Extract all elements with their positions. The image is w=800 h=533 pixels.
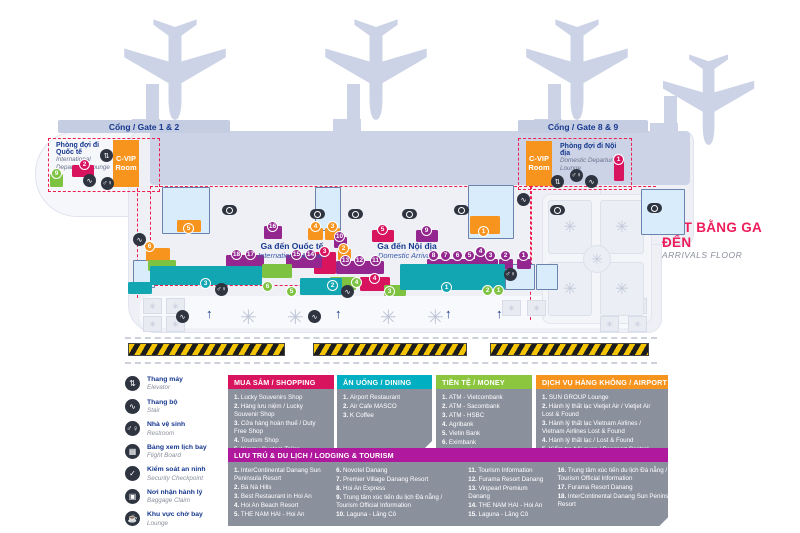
elevator-icon: ⇅: [100, 149, 113, 162]
legend-label-en: Restroom: [147, 430, 185, 438]
flight-board-icon: [310, 209, 325, 219]
legend-item: ▣Nơi nhận hành lýBaggage Claim: [125, 489, 225, 505]
panel-item: 3. Cửa hàng hoàn thuế / Duty Free Shop: [234, 420, 328, 436]
map-room: [641, 189, 685, 235]
legend-item: ☕Khu vực chờ bayLounge: [125, 511, 225, 527]
map-badge-purple: 8: [428, 250, 439, 261]
road-dash-bottom: [125, 362, 657, 364]
road-dash-top: [125, 337, 657, 339]
map-badge-teal: 3: [200, 278, 211, 289]
map-badge-orange: 3: [327, 221, 338, 232]
panel-item-number: 3.: [343, 412, 350, 419]
arrivals-floor-map: ✳ Cổng / Gate 1 & 2 Cổng / Gate 8 & 9 Ph…: [0, 0, 800, 533]
panel-item-number: 4.: [234, 437, 241, 444]
panel-item: 8. Hoi An Express: [336, 485, 460, 493]
panel-item: 6. Novotel Danang: [336, 467, 460, 475]
panel-item-number: 4.: [542, 437, 549, 444]
flight-board-icon: ▦: [125, 444, 140, 459]
panel-item-number: 1.: [234, 394, 241, 401]
up-arrow-icon: ↑: [335, 306, 342, 321]
panel-shopping-header: MUA SẮM / SHOPPING: [228, 375, 334, 389]
map-badge-green: 9: [51, 168, 62, 179]
legend-labels: Thang máyElevator: [147, 376, 183, 392]
legend-labels: Nhà vệ sinhRestroom: [147, 421, 185, 437]
planter-icon: ✳: [628, 316, 647, 332]
panel-dining-header: ĂN UỐNG / DINING: [337, 375, 432, 389]
panel-item-number: 9.: [336, 494, 343, 501]
cvip-room-left: C-VIP Room: [113, 140, 139, 187]
panel-dining: ĂN UỐNG / DINING 1. Airport Restaurant2.…: [337, 375, 432, 450]
legend-item: ✓Kiểm soát an ninhSecurity Checkpoint: [125, 466, 225, 482]
legend-label-vi: Khu vực chờ bay: [147, 511, 203, 519]
panel-service-header: DỊCH VỤ HÀNG KHÔNG / AIRPORT SERVICE: [536, 375, 668, 389]
planter-flower-icon: ✳: [380, 308, 397, 328]
panel-item-number: 5.: [234, 511, 241, 518]
panel-item: 5. THE NAM HAI - Hoi An: [234, 511, 328, 519]
panel-lodging-header: LƯU TRÚ & DU LỊCH / LODGING & TOURISM: [228, 448, 668, 462]
map-badge-purple: 10: [334, 231, 345, 242]
map-badge-purple: 13: [340, 255, 351, 266]
map-badge-crimson: 1: [613, 154, 624, 165]
map-badge-crimson: 2: [79, 159, 90, 170]
panel-item-number: 6.: [336, 467, 343, 474]
panel-item-number: 8.: [336, 485, 343, 492]
panel-item: 17. Furama Resort Danang: [558, 484, 686, 492]
map-badge-purple: 3: [485, 250, 496, 261]
panel-item: 14. THE NAM HAI - Hoi An: [468, 502, 549, 510]
baggage-icon: ▣: [125, 489, 140, 504]
planter-icon: ✳: [527, 300, 546, 316]
map-badge-purple: 6: [452, 250, 463, 261]
panel-item: 15. Laguna - Lăng Cô: [468, 511, 549, 519]
gate-bar-right: Cổng / Gate 8 & 9: [518, 120, 648, 133]
lodging-column: 6. Novotel Danang7. Premier Village Dana…: [336, 467, 460, 520]
panel-item: 12. Furama Resort Danang: [468, 476, 549, 484]
map-badge-teal: 2: [327, 280, 338, 291]
panel-item: 1. SUN GROUP Lounge: [542, 394, 662, 402]
legend-label-vi: Thang máy: [147, 376, 183, 384]
panel-item-number: 3.: [442, 412, 449, 419]
map-room: [536, 264, 558, 290]
legend-item: ▦Bảng xem lịch bayFlight Board: [125, 444, 225, 460]
legend-item: ♂♀Nhà vệ sinhRestroom: [125, 421, 225, 437]
panel-item-number: 2.: [442, 403, 449, 410]
planter-icon: ✳: [143, 316, 162, 332]
gate-bar-left: Cổng / Gate 1 & 2: [58, 120, 230, 133]
legend-label-en: Security Checkpoint: [147, 475, 206, 483]
map-badge-crimson: 5: [377, 224, 388, 235]
panel-item-number: 2.: [234, 484, 241, 491]
legend-label-en: Elevator: [147, 384, 183, 392]
lodging-column: 1. InterContinental Danang Sun Peninsula…: [234, 467, 328, 520]
panel-item-number: 2.: [542, 403, 549, 410]
map-badge-purple: 7: [440, 250, 451, 261]
panel-item: 10. Laguna - Lăng Cô: [336, 511, 460, 519]
map-badge-purple: 5: [464, 250, 475, 261]
legend-label-vi: Nhà vệ sinh: [147, 421, 185, 429]
legend-labels: Thang bộStair: [147, 399, 178, 415]
cvip-left-label: C-VIP Room: [113, 155, 139, 172]
map-badge-purple: 17: [245, 249, 256, 260]
legend-label-vi: Kiểm soát an ninh: [147, 466, 206, 474]
panel-item-number: 10.: [336, 511, 346, 518]
map-badge-crimson: 4: [369, 273, 380, 284]
map-badge-teal: 1: [441, 282, 452, 293]
panel-item: 1. ATM - Vietcombank: [442, 394, 526, 402]
panel-item-number: 12.: [468, 476, 478, 483]
map-badge-green: 6: [262, 281, 273, 292]
panel-item: 5. Vietin Bank: [442, 430, 526, 438]
panel-lodging: LƯU TRÚ & DU LỊCH / LODGING & TOURISM 1.…: [228, 448, 668, 526]
map-block-teal: [128, 282, 152, 294]
map-badge-purple: 14: [305, 249, 316, 260]
planter-icon: ✳: [600, 316, 619, 332]
legend-labels: Nơi nhận hành lýBaggage Claim: [147, 489, 202, 505]
map-badge-purple: 1: [518, 250, 529, 261]
panel-item-number: 1.: [442, 394, 449, 401]
restroom-icon: ♂♀: [215, 283, 228, 296]
flight-board-icon: [348, 209, 363, 219]
panel-item: 6. Eximbank: [442, 439, 526, 447]
stair-icon: ∿: [308, 310, 321, 323]
panel-item: 4. Hành lý thất lạc / Lost & Found: [542, 437, 662, 445]
panel-item: 4. Tourism Shop: [234, 437, 328, 445]
planter-flower-icon: ✳: [287, 308, 304, 328]
panel-item: 1. Airport Restaurant: [343, 394, 426, 402]
panel-item-number: 4.: [234, 502, 241, 509]
up-arrow-icon: ↑: [445, 306, 452, 321]
map-badge-purple: 18: [231, 249, 242, 260]
legend-list: ⇅Thang máyElevator∿Thang bộStair♂♀Nhà vệ…: [125, 376, 225, 533]
panel-item: 3. Best Restaurant in Hoi An: [234, 493, 328, 501]
panel-item: 4. Agribank: [442, 421, 526, 429]
garden-center-circle: ✳: [583, 245, 611, 273]
panel-item-number: 2.: [234, 403, 241, 410]
panel-item-number: 3.: [234, 420, 241, 427]
up-arrow-icon: ↑: [206, 306, 213, 321]
gate-right-label: Cổng / Gate 8 & 9: [548, 122, 618, 132]
panel-dining-body: 1. Airport Restaurant2. Air Cafe MASCO3.…: [337, 389, 432, 450]
legend-label-vi: Nơi nhận hành lý: [147, 489, 202, 497]
security-icon: ✓: [125, 466, 140, 481]
panel-item: 3. K Coffee: [343, 412, 426, 420]
legend-label-en: Flight Board: [147, 452, 207, 460]
map-badge-green: 4: [351, 277, 362, 288]
panel-money-header: TIỀN TỆ / MONEY: [436, 375, 532, 389]
stair-icon: ∿: [176, 310, 189, 323]
flight-board-icon: [402, 209, 417, 219]
panel-item-number: 11.: [468, 467, 478, 474]
panel-item-number: 5.: [442, 430, 449, 437]
map-badge-purple: 11: [370, 255, 381, 266]
flower-icon: ✳: [591, 251, 603, 268]
up-arrow-icon: ↑: [496, 306, 503, 321]
map-badge-orange: 1: [478, 226, 489, 237]
panel-item: 2. Hành lý thất lạc Vietjet Air / Vietje…: [542, 403, 662, 419]
map-block-green: [262, 264, 292, 278]
flight-board-icon: [550, 205, 565, 215]
panel-item: 13. Vinpearl Premium Danang: [468, 485, 549, 501]
lounge-icon: ☕: [125, 511, 140, 526]
legend-labels: Bảng xem lịch bayFlight Board: [147, 444, 207, 460]
map-badge-purple: 9: [421, 225, 432, 236]
stair-icon: ∿: [585, 175, 598, 188]
legend-item: ⇅Thang máyElevator: [125, 376, 225, 392]
page-subtitle: ARRIVALS FLOOR: [662, 250, 794, 260]
panel-item-number: 1.: [343, 394, 350, 401]
planter-icon: ✳: [143, 298, 162, 314]
legend-label-en: Lounge: [147, 520, 203, 528]
map-badge-orange: 5: [183, 223, 194, 234]
panel-item-number: 4.: [442, 421, 449, 428]
legend-label-vi: Thang bộ: [147, 399, 178, 407]
panel-item-number: 3.: [234, 493, 241, 500]
panel-item-number: 18.: [558, 493, 568, 500]
map-badge-purple: 16: [267, 221, 278, 232]
panel-item-number: 14.: [468, 502, 478, 509]
panel-item: 2. Air Cafe MASCO: [343, 403, 426, 411]
planter-flower-icon: ✳: [427, 308, 444, 328]
legend-label-vi: Bảng xem lịch bay: [147, 444, 207, 452]
panel-item: 1. Lucky Souvenirs Shop: [234, 394, 328, 402]
panel-item-number: 1.: [234, 467, 241, 474]
panel-item: 2. ATM - Sacombank: [442, 403, 526, 411]
map-badge-orange: 4: [310, 221, 321, 232]
map-badge-orange: 2: [338, 243, 349, 254]
cvip-room-right: C-VIP Room: [526, 141, 552, 186]
flight-board-icon: [647, 203, 662, 213]
stair-icon: ∿: [125, 399, 140, 414]
garden-planter-icon: ✳: [600, 200, 644, 254]
legend-label-en: Baggage Claim: [147, 497, 202, 505]
lodging-column: 16. Trung tâm xúc tiến du lịch Đà nẵng /…: [558, 467, 686, 520]
panel-item: 3. Hành lý thất lạc Vietnam Airlines / V…: [542, 420, 662, 436]
panel-item-number: 3.: [542, 420, 549, 427]
panel-item-number: 17.: [558, 484, 568, 491]
map-badge-orange: 6: [144, 241, 155, 252]
map-badge-crimson: 3: [319, 246, 330, 257]
panel-item-number: 6.: [442, 439, 449, 446]
cvip-right-label: C-VIP Room: [526, 155, 552, 172]
lodging-column: 11. Tourism Information12. Furama Resort…: [468, 467, 549, 520]
panel-item: 2. Hàng lưu niệm / Lucky Souvenir Shop: [234, 403, 328, 419]
panel-item: 11. Tourism Information: [468, 467, 549, 475]
elevator-icon: ⇅: [125, 376, 140, 391]
map-badge-green: 3: [384, 286, 395, 297]
crosswalk-right: [490, 343, 649, 356]
map-badge-purple: 12: [354, 255, 365, 266]
restroom-icon: ♂♀: [504, 268, 517, 281]
legend-item: ∿Thang bộStair: [125, 399, 225, 415]
legend-labels: Kiểm soát an ninhSecurity Checkpoint: [147, 466, 206, 482]
legend-label-en: Stair: [147, 407, 178, 415]
stair-icon: ∿: [341, 285, 354, 298]
panel-item: 7. Premier Village Danang Resort: [336, 476, 460, 484]
panel-item-number: 1.: [542, 394, 549, 401]
panel-item-number: 16.: [558, 467, 568, 474]
flight-board-icon: [454, 205, 469, 215]
panel-item: 4. Hoi An Beach Resort: [234, 502, 328, 510]
restroom-icon: ♂♀: [101, 177, 114, 190]
map-badge-green: 2: [482, 285, 493, 296]
map-badge-green: 1: [493, 285, 504, 296]
garden-planter-icon: ✳: [600, 262, 644, 316]
panel-item: 18. InterContinental Danang Sun Peninsul…: [558, 493, 686, 509]
restroom-icon: ♂♀: [570, 169, 583, 182]
crosswalk-center: [313, 343, 467, 356]
restroom-icon: ♂♀: [125, 421, 140, 436]
panel-item: 1. InterContinental Danang Sun Peninsula…: [234, 467, 328, 483]
panel-item: 2. Bà Nà Hills: [234, 484, 328, 492]
map-badge-green: 5: [286, 286, 297, 297]
panel-lodging-body: 1. InterContinental Danang Sun Peninsula…: [228, 462, 668, 526]
stair-icon: ∿: [517, 193, 530, 206]
planter-flower-icon: ✳: [240, 308, 257, 328]
panel-item-number: 2.: [343, 403, 350, 410]
gate-left-label: Cổng / Gate 1 & 2: [109, 122, 179, 132]
flight-board-icon: [222, 205, 237, 215]
map-badge-purple: 2: [500, 250, 511, 261]
panel-item: 9. Trung tâm xúc tiến du lịch Đà nẵng / …: [336, 494, 460, 510]
legend-labels: Khu vực chờ bayLounge: [147, 511, 203, 527]
panel-item-number: 13.: [468, 485, 478, 492]
map-badge-purple: 15: [291, 249, 302, 260]
stair-icon: ∿: [83, 174, 96, 187]
panel-item: 16. Trung tâm xúc tiến du lịch Đà nẵng /…: [558, 467, 686, 483]
planter-icon: ✳: [502, 300, 521, 316]
crosswalk-left: [128, 343, 285, 356]
elevator-icon: ⇅: [551, 175, 564, 188]
panel-item: 3. ATM - HSBC: [442, 412, 526, 420]
panel-item-number: 7.: [336, 476, 343, 483]
panel-item-number: 15.: [468, 511, 478, 518]
